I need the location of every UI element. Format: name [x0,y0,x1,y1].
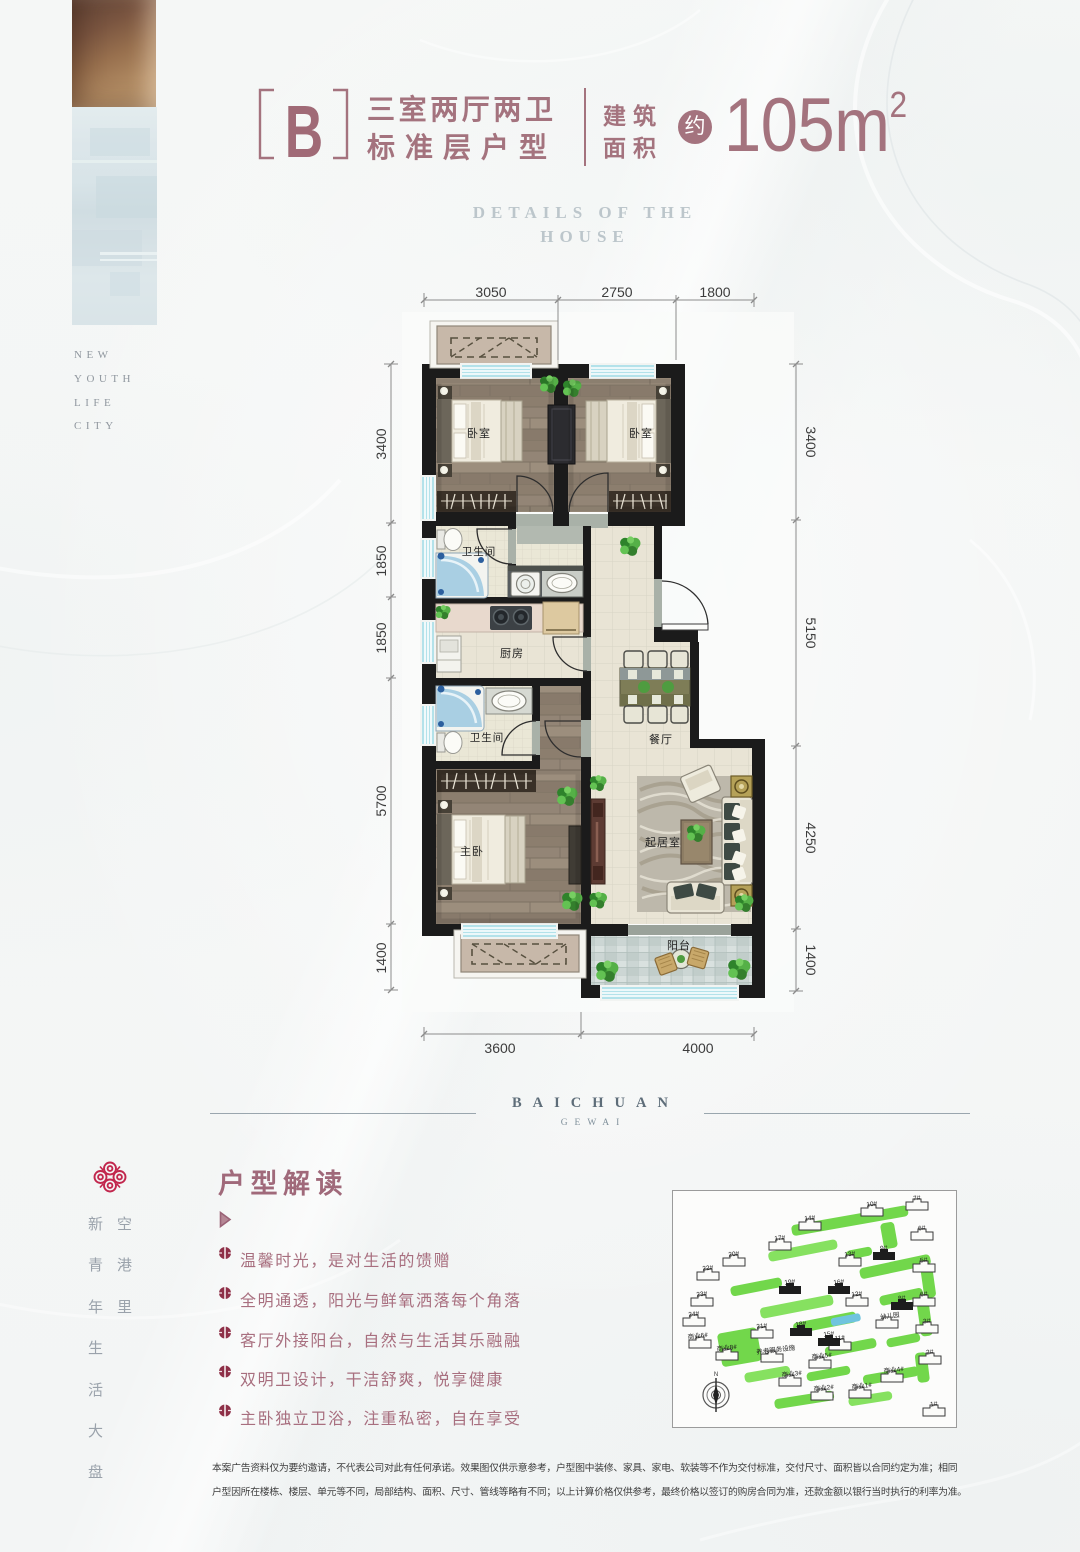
svg-text:1800: 1800 [699,284,730,300]
svg-text:7#: 7# [913,1195,921,1203]
svg-text:N: N [714,1372,718,1378]
svg-text:阳台: 阳台 [667,938,691,952]
svg-text:5150: 5150 [803,617,819,648]
svg-text:22#: 22# [702,1264,714,1272]
svg-text:12#: 12# [851,1290,863,1298]
svg-text:6#: 6# [918,1225,926,1233]
svg-text:24#: 24# [688,1310,700,1318]
svg-text:23#: 23# [696,1290,708,1298]
svg-text:卧室: 卧室 [629,426,653,440]
svg-text:餐厅: 餐厅 [649,732,673,746]
svg-text:起居室: 起居室 [645,835,681,849]
svg-text:5#: 5# [920,1257,928,1265]
svg-text:2#: 2# [926,1349,934,1357]
svg-text:17#: 17# [774,1234,786,1242]
svg-text:11#: 11# [834,1334,846,1342]
svg-text:21#: 21# [756,1322,768,1330]
svg-text:1400: 1400 [803,944,819,975]
svg-text:3600: 3600 [484,1040,515,1056]
svg-text:8#: 8# [898,1295,906,1303]
svg-text:14#: 14# [804,1214,816,1222]
svg-text:3#: 3# [923,1318,931,1326]
svg-text:19#: 19# [784,1278,796,1286]
svg-text:3400: 3400 [803,426,819,457]
svg-text:20#: 20# [728,1250,740,1258]
svg-text:10#: 10# [866,1200,878,1208]
svg-text:15#: 15# [823,1330,835,1338]
svg-text:卫生间: 卫生间 [470,731,505,744]
svg-text:卫生间: 卫生间 [462,545,497,558]
svg-text:9#: 9# [880,1245,888,1253]
svg-text:4000: 4000 [682,1040,713,1056]
svg-text:5700: 5700 [373,785,389,816]
svg-text:1850: 1850 [373,622,389,653]
svg-text:6#: 6# [920,1291,928,1299]
svg-text:1400: 1400 [373,942,389,973]
svg-text:厨房: 厨房 [500,647,524,660]
svg-text:2750: 2750 [601,284,632,300]
svg-text:3400: 3400 [373,428,389,459]
svg-text:主卧: 主卧 [460,845,484,858]
svg-text:1850: 1850 [373,545,389,576]
svg-text:3050: 3050 [475,284,506,300]
svg-text:13#: 13# [844,1250,856,1258]
svg-text:1#: 1# [930,1401,938,1409]
svg-text:16#: 16# [833,1278,845,1286]
svg-text:卧室: 卧室 [467,426,491,440]
svg-text:4250: 4250 [803,822,819,853]
svg-text:18#: 18# [795,1320,807,1328]
